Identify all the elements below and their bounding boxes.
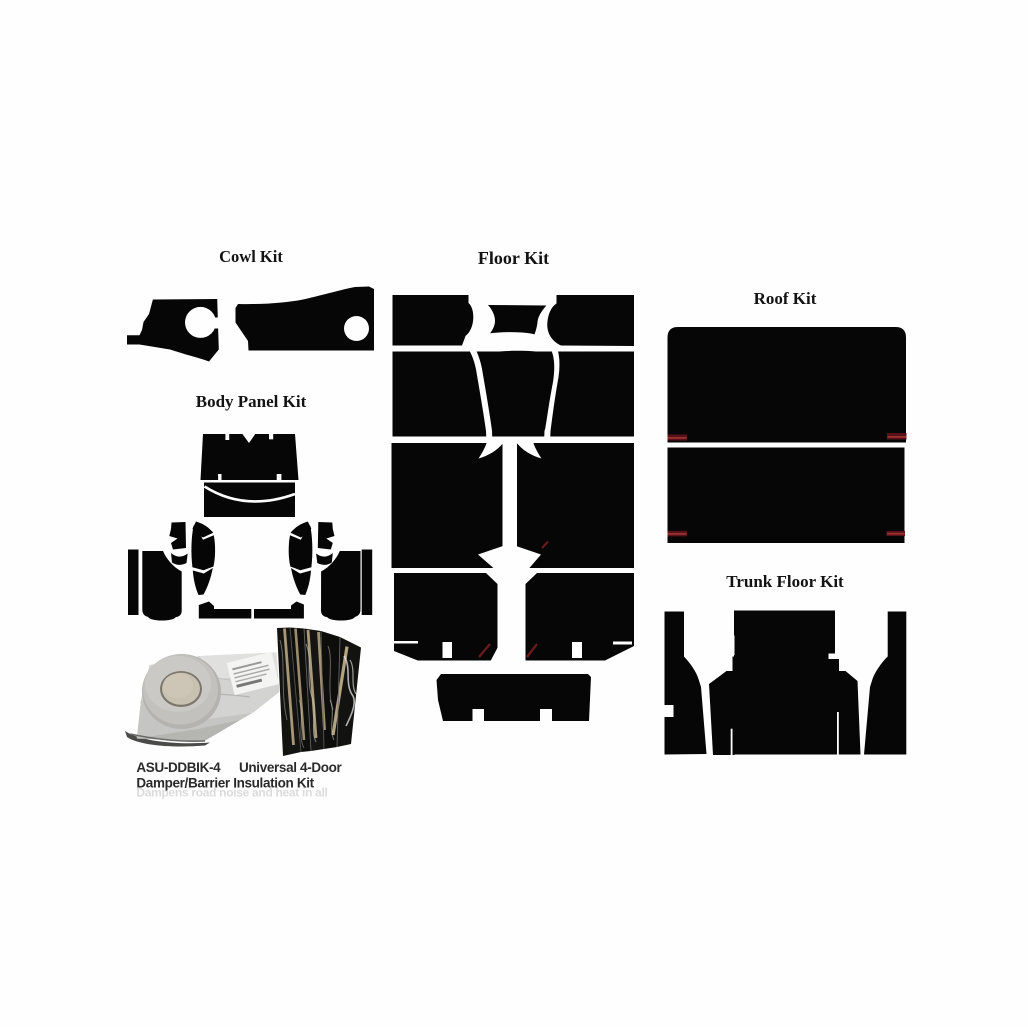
svg-text:Dampens road noise and heat in: Dampens road noise and heat in all (136, 786, 327, 800)
svg-text:ASU-DDBIK-4: ASU-DDBIK-4 (136, 760, 221, 775)
svg-text:Trunk Floor Kit: Trunk Floor Kit (726, 572, 844, 591)
svg-text:Cowl Kit: Cowl Kit (219, 247, 283, 266)
svg-text:Universal 4-Door: Universal 4-Door (239, 760, 343, 775)
svg-text:Body Panel Kit: Body Panel Kit (196, 392, 307, 411)
svg-text:Floor Kit: Floor Kit (478, 248, 549, 268)
svg-text:Roof Kit: Roof Kit (754, 289, 817, 308)
